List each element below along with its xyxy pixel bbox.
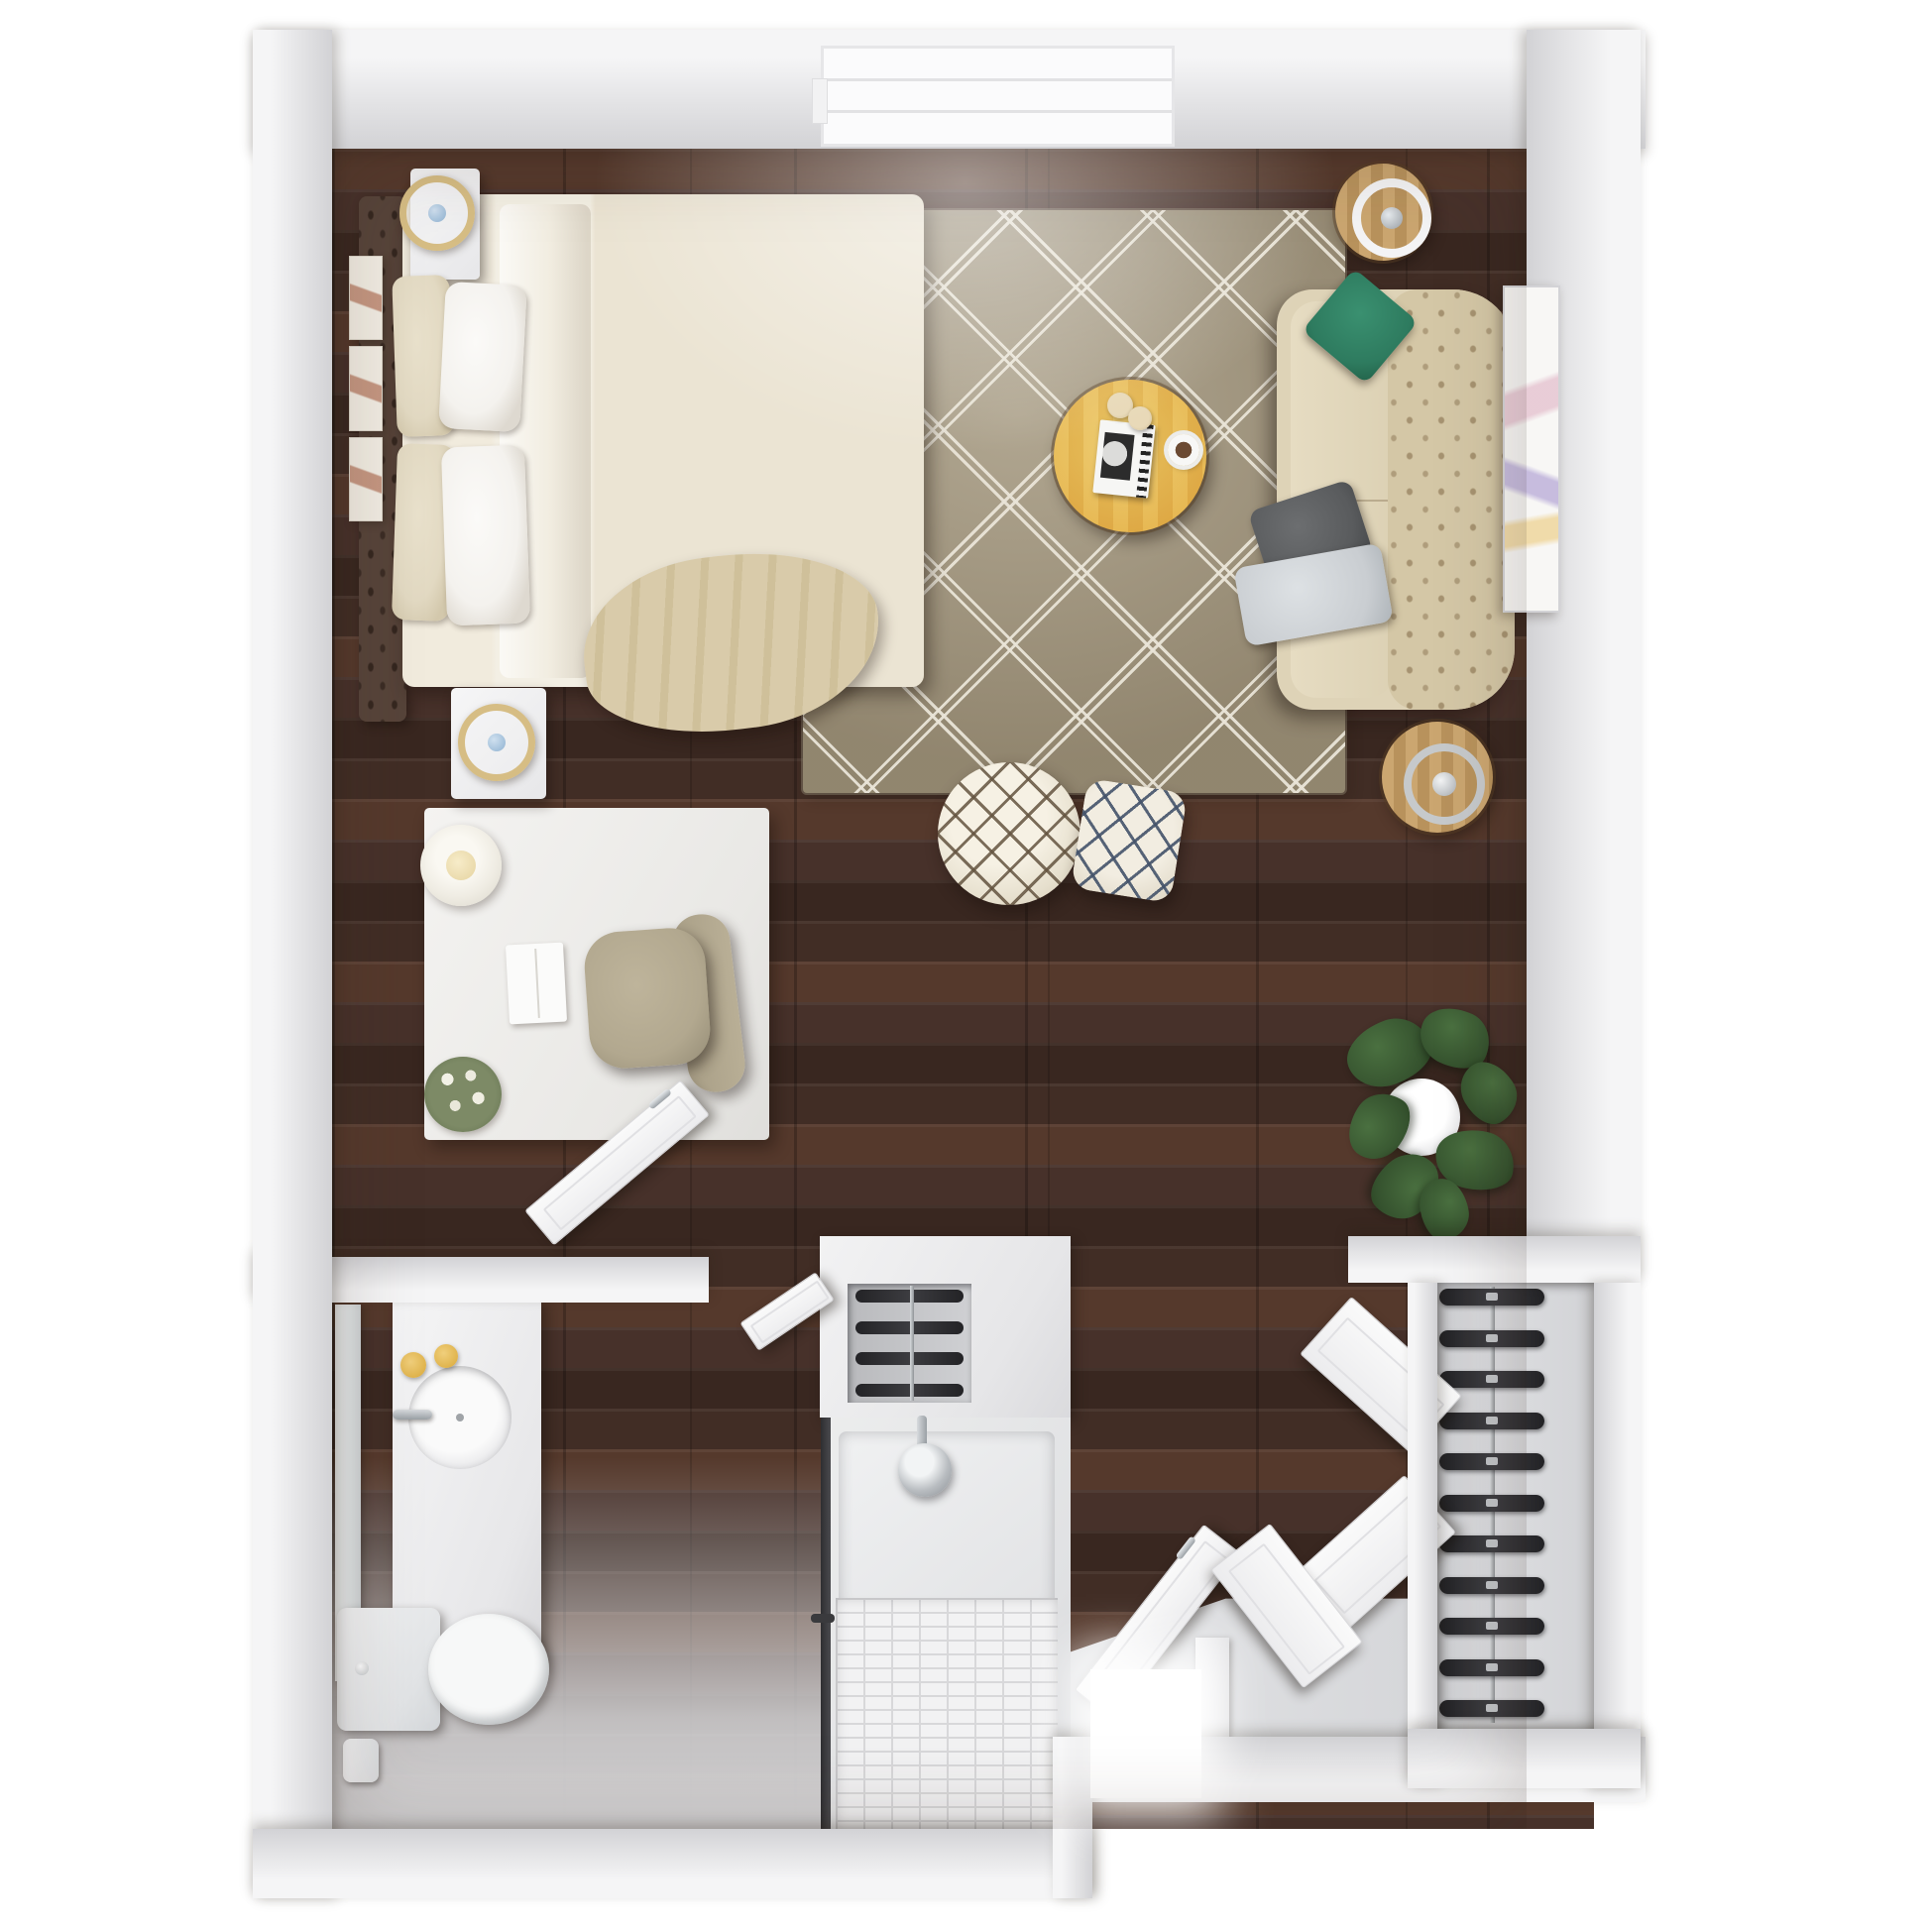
coaster-2 [1128, 406, 1152, 430]
shower-tile-floor [836, 1598, 1058, 1829]
office-chair-seat [582, 926, 712, 1071]
floor-plan-scene [0, 0, 1932, 1932]
hanger [1439, 1453, 1544, 1470]
window-latch [812, 78, 828, 124]
desk-lamp [420, 825, 502, 906]
hanger [1439, 1413, 1544, 1429]
window-mullion [824, 110, 1172, 113]
soap-dish-2 [434, 1344, 458, 1368]
art-left [349, 346, 383, 430]
shower-shelf-block [820, 1236, 1071, 1418]
closet-stub-wall [1348, 1236, 1641, 1283]
wall-right [1527, 30, 1641, 1283]
hanger [1439, 1289, 1544, 1306]
pouf-square [1071, 778, 1188, 904]
sofa-tufted-back [1388, 289, 1515, 710]
shower-glass-frame [821, 1418, 831, 1832]
coffee-cup [1168, 434, 1199, 466]
hanger [1439, 1577, 1544, 1594]
closet-wall-bottom [1408, 1729, 1641, 1788]
toilet-bowl [428, 1614, 549, 1725]
art-left [349, 256, 383, 340]
shower-glass-handle [811, 1614, 835, 1623]
toilet-paper-holder [343, 1739, 379, 1782]
closet-wall-right [1594, 1283, 1641, 1788]
notebook [506, 943, 567, 1025]
shower-niche-shelves [848, 1284, 971, 1403]
niche-shelf [855, 1352, 964, 1365]
hanger [1439, 1371, 1544, 1388]
art-frames-left-wall [349, 256, 383, 521]
closet-wall-left [1408, 1283, 1437, 1784]
niche-shelf [855, 1321, 964, 1334]
wall-bottom-bathroom [253, 1829, 1092, 1898]
pillow-white-bottom [441, 445, 530, 626]
wall-left [253, 30, 332, 1898]
side-table-lamp-bottom [1404, 743, 1485, 825]
sink-faucet [393, 1410, 432, 1420]
closet-hanger-rack [1439, 1289, 1544, 1717]
soap-dish-1 [400, 1352, 426, 1378]
book-cover-photo [1100, 432, 1135, 481]
flower-bouquet [424, 1057, 502, 1132]
entry-doorway-light [1090, 1669, 1201, 1798]
ring-lamp-top [399, 175, 475, 251]
coffee-table-book [1092, 419, 1155, 498]
hanger [1439, 1618, 1544, 1635]
hanger [1439, 1495, 1544, 1512]
hanger [1439, 1700, 1544, 1717]
pillow-white-top [438, 282, 527, 432]
pouf-round [938, 762, 1080, 905]
ring-lamp-bottom [458, 704, 535, 781]
shower-head [898, 1443, 952, 1497]
art-left [349, 437, 383, 521]
side-table-lamp-top [1352, 178, 1431, 258]
toilet-tank [337, 1608, 440, 1731]
window-mullion [824, 78, 1172, 81]
window [821, 46, 1175, 147]
wall-step-connector [1053, 1737, 1092, 1898]
abstract-art-right-wall [1503, 285, 1560, 613]
niche-shelf [855, 1384, 964, 1397]
niche-shelf [855, 1290, 964, 1303]
hanger [1439, 1330, 1544, 1347]
hanger [1439, 1659, 1544, 1676]
hanger [1439, 1535, 1544, 1552]
